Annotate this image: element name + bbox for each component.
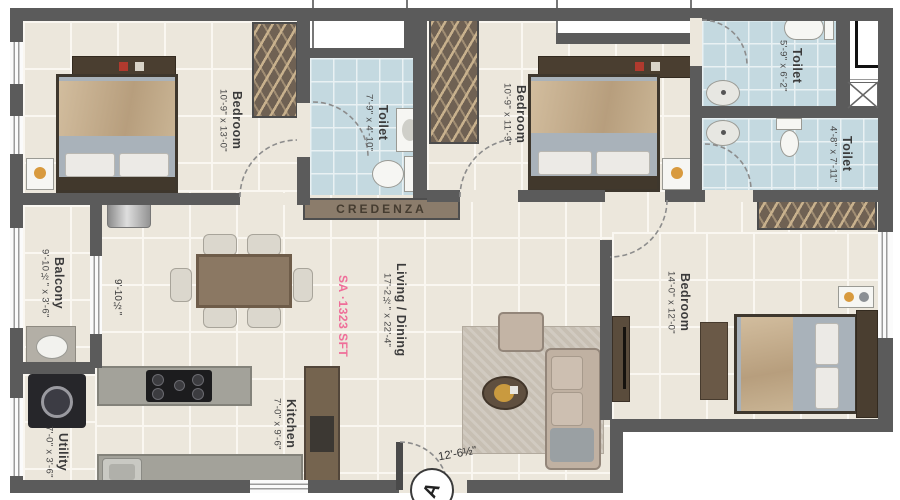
wall-bottom [10, 480, 622, 493]
decor-item [671, 167, 683, 179]
wall-bedroom-3-left [600, 240, 612, 420]
door-gap-toilet-2 [690, 18, 702, 66]
sofa-throw-blanket [550, 428, 594, 462]
sofa-cushion [551, 392, 583, 426]
basin-tap [721, 130, 726, 135]
door-gap-bedroom-1 [240, 193, 297, 205]
room-name: Kitchen [282, 380, 298, 468]
room-dims: 7'-0" x 3'-6" [43, 412, 55, 492]
window-utility [10, 398, 23, 476]
basin-bowl [36, 335, 68, 359]
duct-box [848, 82, 878, 108]
bed-foot-bench [529, 176, 657, 189]
bedroom-1-nightstand [26, 158, 54, 190]
window-kitchen [250, 480, 308, 493]
toilet-1-label: Toilet 7'-9" x 4'-10" [350, 65, 390, 180]
living-dining-label: Living / Dining 17'-2½" x 22'-4" [360, 250, 408, 370]
room-name: Balcony [50, 233, 66, 333]
sofa-cushion [551, 356, 583, 390]
entrance-marker-letter: A [419, 479, 446, 500]
kitchen-tall-unit [304, 366, 340, 490]
bedroom-2-label: Bedroom 10'-9" x 11'-9" [482, 52, 528, 177]
wall-toilet-2-right [836, 8, 850, 108]
window-bedroom-1-b [10, 116, 23, 154]
wardrobe-bedroom-3 [757, 200, 877, 230]
area-value: SA ·1323 SFT [335, 264, 350, 369]
room-dims: 17'-2½" x 22'-4" [381, 250, 393, 370]
burner [152, 388, 164, 400]
bedroom-2-nightstand [662, 158, 692, 190]
balcony-label: Balcony 9'-10½" x 3'-6" [24, 233, 66, 333]
wall-below-bedroom-3 [610, 432, 623, 493]
bed-blanket [59, 81, 175, 136]
decor-item [844, 292, 854, 302]
wall-niche-1-side [404, 8, 427, 50]
room-dims: 5'-9" x 6'-2" [777, 28, 789, 104]
burner [192, 388, 204, 400]
bed-blanket [741, 317, 793, 411]
bed-foot-bench [57, 177, 175, 190]
wardrobe-bedroom-2 [429, 12, 479, 144]
sliding-door-balcony [90, 256, 102, 334]
wardrobe-bedroom-1 [252, 22, 298, 118]
door-gap-toilet-3 [705, 190, 753, 202]
toilet-2-basin [706, 80, 740, 106]
decor-item [635, 62, 644, 71]
room-name: Toilet [838, 118, 854, 190]
bed-pillow [538, 151, 592, 175]
toilet-3-cistern [776, 118, 802, 130]
room-dims: 10'-9" x 13'-0" [217, 55, 229, 185]
dimension-balcony-length: 9'-10½" [112, 252, 123, 342]
decor-item [34, 167, 46, 179]
room-name: Bedroom [228, 55, 244, 185]
dining-chair [203, 234, 237, 256]
dining-table [196, 254, 292, 308]
kitchen-label: Kitchen 7'-0" x 9'-6" [256, 380, 298, 468]
room-name: Toilet [788, 28, 804, 104]
toilet-2-label: Toilet 5'-9" x 6'-2" [764, 28, 804, 104]
wall-under-duct [843, 106, 878, 118]
dining-chair [203, 306, 237, 328]
bed-pillow [815, 367, 839, 409]
window-balcony [10, 228, 23, 328]
room-name: Bedroom [512, 52, 528, 177]
toilet-3-wc-bowl [780, 130, 799, 157]
decor-item [510, 386, 518, 394]
entrance-door-leaf [396, 442, 403, 490]
decor-item [119, 62, 128, 71]
bed-pillow [65, 153, 115, 177]
window-bedroom-1-a [10, 42, 23, 84]
bedroom-1-label: Bedroom 10'-9" x 13'-0" [198, 55, 244, 185]
coffee-table [482, 376, 528, 410]
wall-top [10, 8, 893, 21]
door-gap-bedroom-2 [460, 190, 518, 202]
gas-stove [146, 370, 212, 402]
sofa [545, 348, 601, 470]
utility-label: Utility 7'-0" x 3'-6" [28, 412, 70, 492]
bedroom-1-double-bed [56, 74, 178, 193]
room-name: Bedroom [676, 252, 692, 352]
bed-blanket [531, 81, 657, 133]
burner [174, 380, 185, 391]
dining-chair [247, 306, 281, 328]
room-dims: 7'-0" x 9'-6" [271, 380, 283, 468]
toilet-3-basin [706, 120, 740, 146]
decor-item [651, 62, 660, 71]
saleable-area-label: SA ·1323 SFT [330, 264, 350, 369]
wall-toilet-1-top [308, 48, 415, 58]
bedroom-3-nightstand [838, 286, 874, 308]
dining-chair [170, 268, 192, 302]
bed-pillow [596, 151, 650, 175]
tv-screen [623, 327, 626, 389]
room-dims: 4'-8" x 7'-11" [827, 118, 839, 190]
decor-item [859, 292, 869, 302]
ottoman [498, 312, 544, 352]
refrigerator [310, 416, 334, 452]
bedroom-3-double-bed [734, 314, 858, 414]
room-dims: 10'-9" x 11'-9" [501, 52, 513, 177]
dining-chair [293, 268, 313, 302]
decor-item [135, 62, 144, 71]
room-dims: 9'-10½" x 3'-6" [39, 233, 51, 333]
dining-chair [247, 234, 281, 256]
bed-pillow [815, 323, 839, 365]
toilet-3-label: Toilet 4'-8" x 7'-11" [814, 118, 854, 190]
bedroom-2-double-bed [528, 74, 660, 192]
bed-pillow [119, 153, 169, 177]
wall-right [878, 8, 893, 432]
room-dims: 7'-9" x 4'-10" [363, 65, 375, 180]
credenza-label: CREDENZA [336, 202, 427, 216]
basin-tap [721, 90, 726, 95]
door-gap-toilet-1 [297, 103, 310, 157]
sink-basin [109, 464, 135, 480]
room-name: Living / Dining [392, 250, 408, 370]
floor-plan: CREDENZA [0, 0, 900, 500]
wall-niche-2-band [556, 33, 692, 44]
room-name: Toilet [374, 65, 390, 180]
room-dims: 14'-0" x 12'-0" [665, 252, 677, 352]
bedroom-3-label: Bedroom 14'-0" x 12'-0" [644, 252, 692, 352]
wall-balcony-utility [10, 362, 95, 374]
wall-bedroom-3-bottom [610, 419, 891, 432]
bedroom-3-headboard [856, 310, 878, 418]
burner [192, 374, 204, 386]
room-name: Utility [54, 412, 70, 492]
bedroom-3-tv-unit [612, 316, 630, 402]
burner [152, 374, 164, 386]
window-bedroom-3 [878, 232, 893, 338]
bedroom-3-dresser [700, 322, 728, 400]
